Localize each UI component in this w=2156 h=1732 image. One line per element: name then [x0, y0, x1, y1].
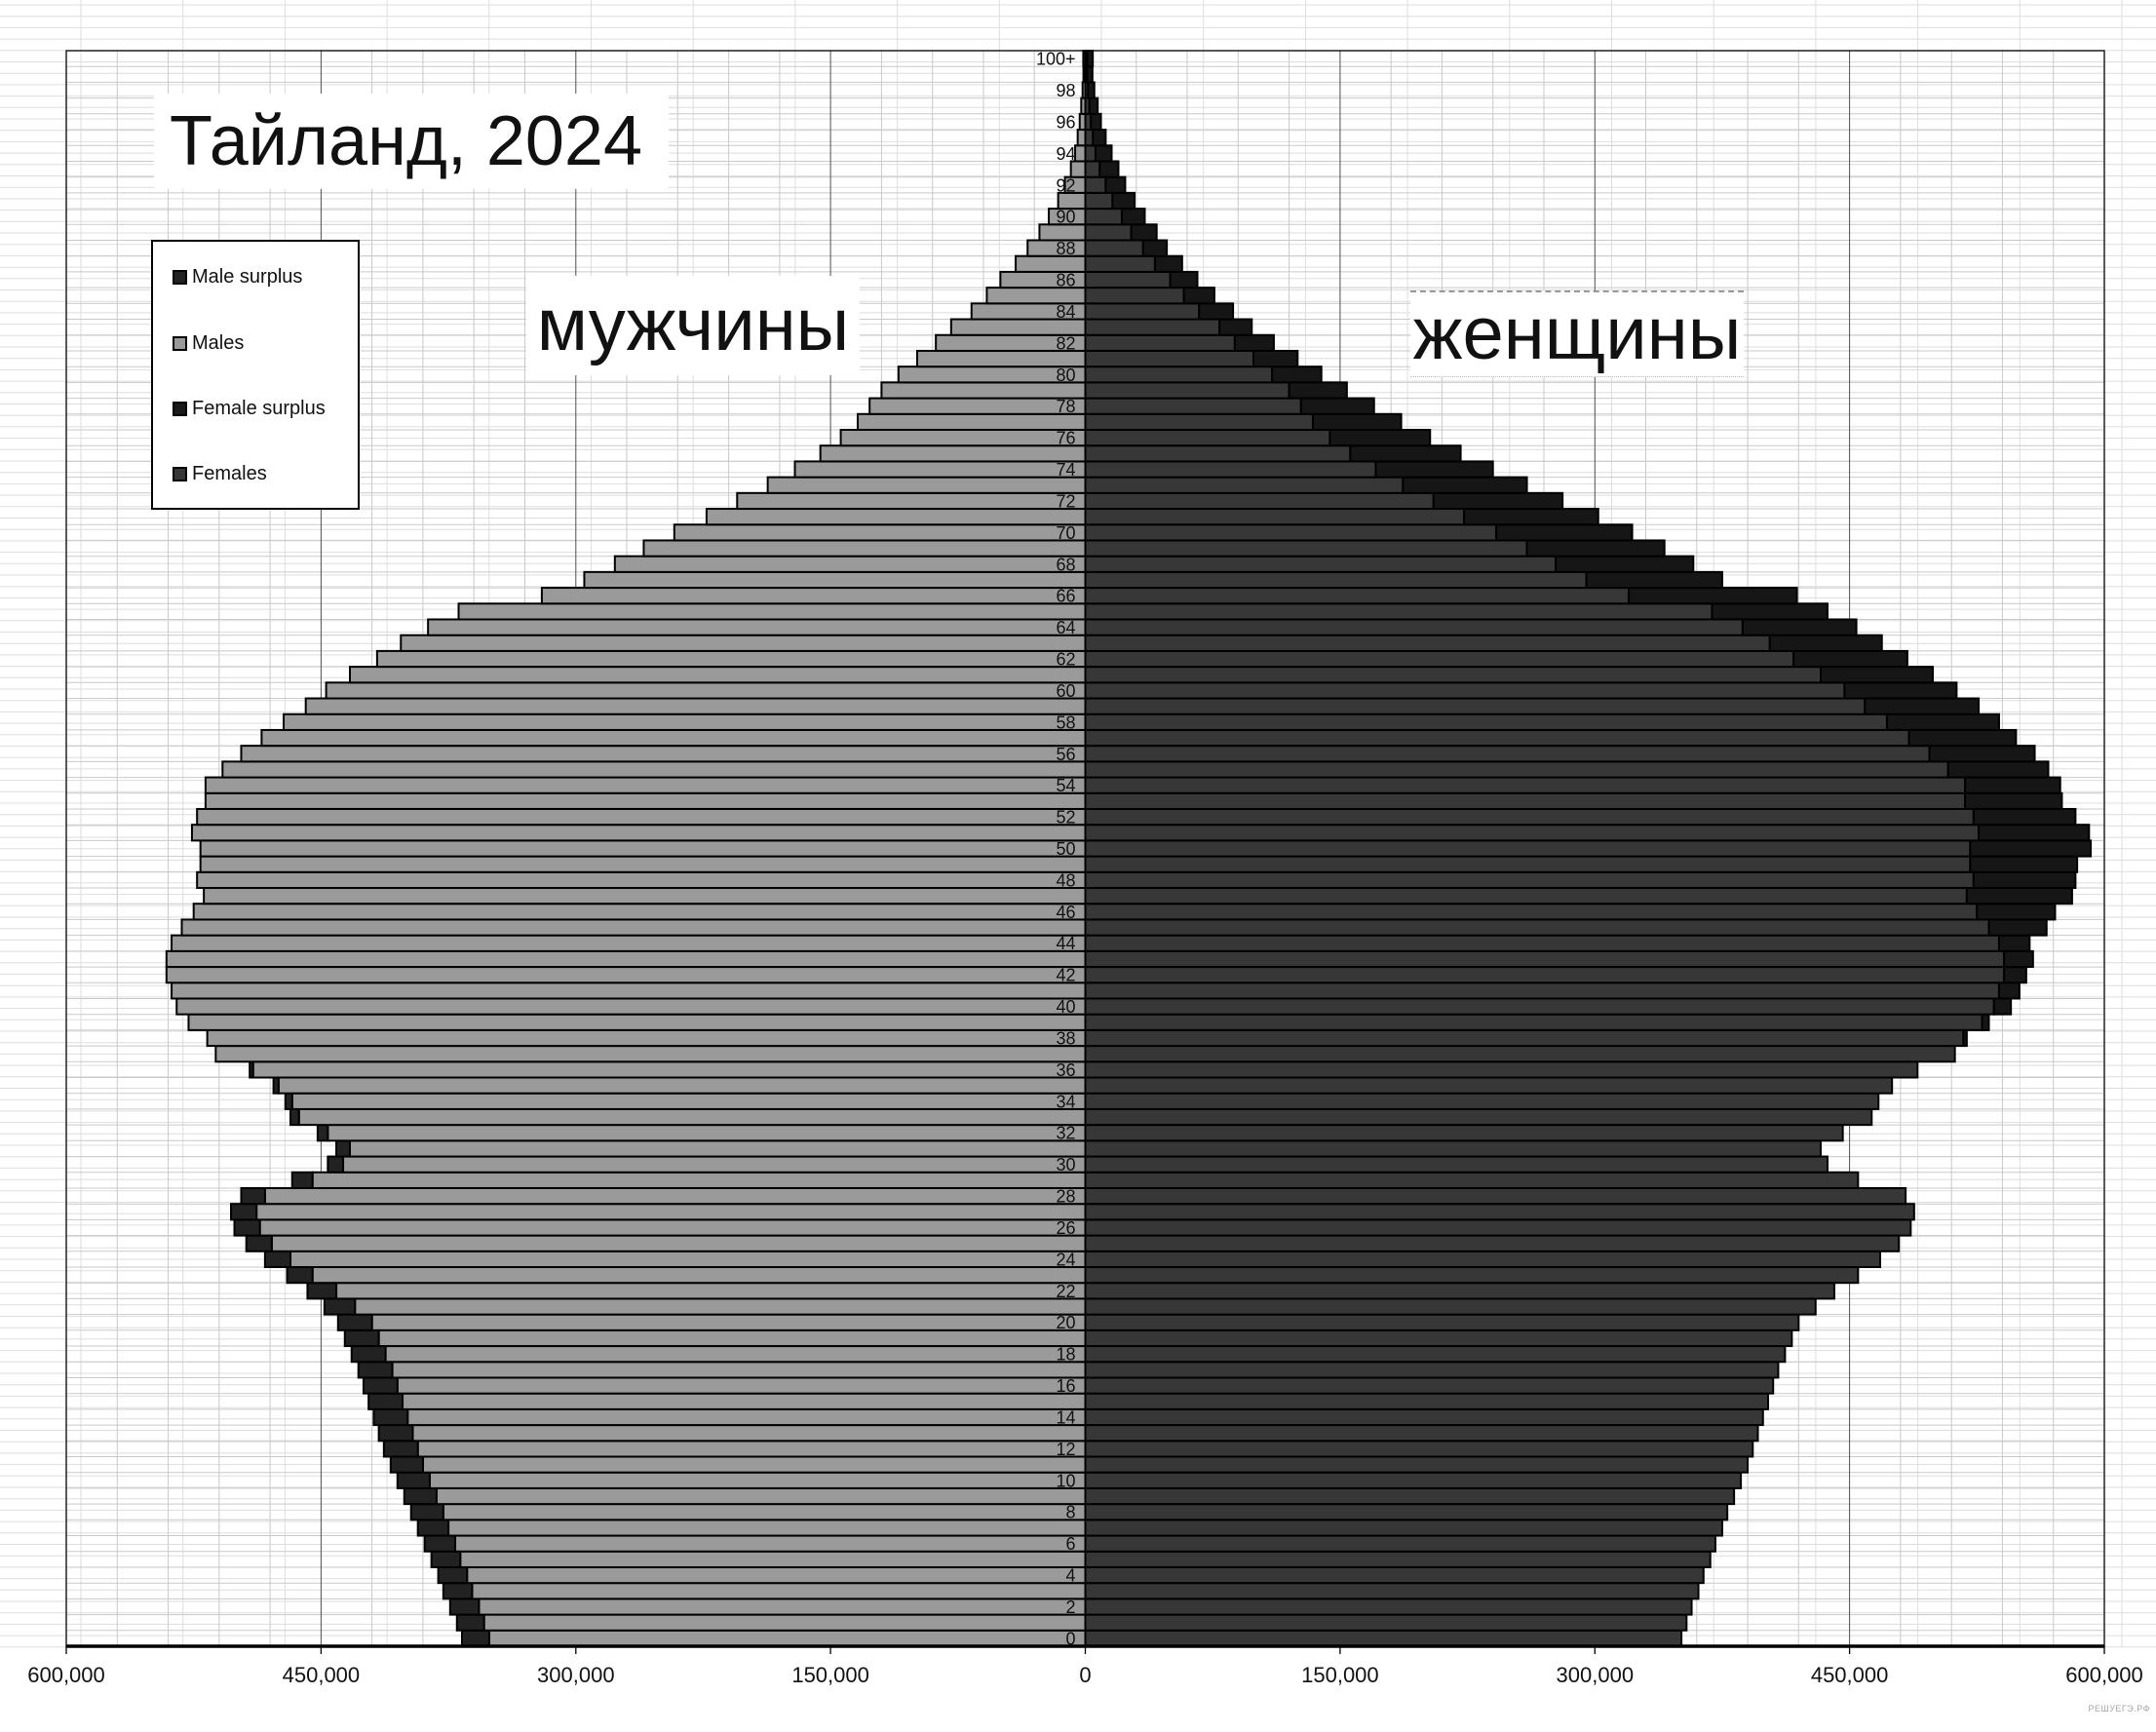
- bar-female-age-51: [1086, 825, 1980, 840]
- legend-label: Female surplus: [192, 398, 326, 420]
- male-surplus-swatch-icon: [173, 270, 187, 285]
- age-tick-34: 34: [1056, 1092, 1075, 1111]
- bar-male-age-20: [372, 1315, 1086, 1330]
- bar-male-surplus-age-30: [327, 1157, 343, 1173]
- bar-female-age-38: [1086, 1030, 1964, 1046]
- bar-female-age-22: [1086, 1283, 1834, 1298]
- bar-female-surplus-age-89: [1132, 224, 1157, 240]
- age-tick-28: 28: [1056, 1187, 1075, 1207]
- bar-male-age-48: [197, 872, 1085, 888]
- bar-female-surplus-age-56: [1930, 746, 2035, 761]
- bar-male-surplus-age-20: [338, 1315, 372, 1330]
- age-tick-24: 24: [1056, 1250, 1075, 1269]
- age-tick-2: 2: [1065, 1597, 1075, 1617]
- age-tick-94: 94: [1056, 144, 1075, 164]
- bar-male-age-41: [172, 982, 1085, 998]
- bar-male-age-66: [542, 588, 1086, 603]
- bar-male-age-23: [313, 1267, 1086, 1283]
- bar-female-age-24: [1086, 1251, 1880, 1267]
- age-tick-70: 70: [1056, 523, 1075, 543]
- bar-female-surplus-age-54: [1965, 778, 2060, 793]
- bar-female-surplus-age-77: [1313, 414, 1402, 430]
- bar-female-age-61: [1086, 667, 1822, 682]
- bar-male-surplus-age-3: [443, 1583, 473, 1598]
- bar-female-age-11: [1086, 1457, 1749, 1473]
- bar-female-age-15: [1086, 1394, 1768, 1409]
- bar-male-age-51: [192, 825, 1086, 840]
- bar-female-age-62: [1086, 651, 1794, 667]
- bar-female-surplus-age-48: [1974, 872, 2076, 888]
- bar-female-age-60: [1086, 682, 1845, 698]
- age-tick-66: 66: [1056, 587, 1075, 606]
- bar-female-surplus-age-87: [1155, 256, 1182, 272]
- bar-female-age-44: [1086, 936, 1999, 951]
- x-tick-600,000-R: 600,000: [2065, 1663, 2143, 1687]
- bar-female-age-48: [1086, 872, 1974, 888]
- bar-male-age-40: [176, 998, 1085, 1014]
- bar-female-age-55: [1086, 761, 1948, 777]
- age-tick-0: 0: [1065, 1629, 1075, 1648]
- bar-female-age-50: [1086, 840, 1971, 856]
- bar-female-age-64: [1086, 619, 1743, 635]
- bar-male-age-21: [355, 1298, 1085, 1314]
- x-tick-450,000-L: 450,000: [283, 1663, 361, 1687]
- x-tick-300,000-R: 300,000: [1557, 1663, 1635, 1687]
- bar-male-age-85: [986, 288, 1085, 303]
- x-tick-450,000-R: 450,000: [1811, 1663, 1889, 1687]
- bar-female-surplus-age-91: [1112, 193, 1135, 209]
- age-tick-40: 40: [1056, 997, 1075, 1017]
- bar-female-age-23: [1086, 1267, 1859, 1283]
- bar-female-surplus-age-74: [1375, 461, 1492, 477]
- age-tick-78: 78: [1056, 397, 1075, 416]
- legend-item-female-surplus: Female surplus: [173, 395, 326, 422]
- bar-female-surplus-age-67: [1587, 572, 1722, 588]
- bar-female-surplus-age-94: [1096, 145, 1112, 161]
- bar-female-age-69: [1086, 540, 1527, 556]
- age-tick-96: 96: [1056, 112, 1075, 132]
- bar-male-surplus-age-26: [235, 1219, 260, 1235]
- bar-female-age-83: [1086, 320, 1220, 335]
- bar-female-age-78: [1086, 399, 1301, 414]
- bar-female-surplus-age-62: [1793, 651, 1907, 667]
- legend-item-females: Females: [173, 460, 267, 487]
- bar-male-age-79: [881, 382, 1085, 398]
- bar-male-age-31: [350, 1140, 1086, 1156]
- age-tick-86: 86: [1056, 271, 1075, 290]
- bar-male-surplus-age-36: [250, 1061, 252, 1077]
- bar-male-age-69: [643, 540, 1085, 556]
- age-tick-100+: 100+: [1036, 50, 1076, 69]
- bar-female-surplus-age-92: [1105, 177, 1125, 193]
- bar-female-age-33: [1086, 1109, 1872, 1125]
- bar-male-surplus-age-31: [336, 1140, 350, 1156]
- bar-male-age-76: [841, 430, 1086, 445]
- bar-male-surplus-age-10: [398, 1473, 430, 1488]
- bar-female-surplus-age-51: [1979, 825, 2089, 840]
- bar-male-age-15: [403, 1394, 1085, 1409]
- bar-male-age-87: [1016, 256, 1085, 272]
- bar-female-surplus-age-75: [1350, 445, 1460, 461]
- bar-female-surplus-age-85: [1184, 288, 1214, 303]
- bar-male-surplus-age-27: [231, 1204, 256, 1219]
- bar-female-age-40: [1086, 998, 1994, 1014]
- bar-female-age-30: [1086, 1157, 1828, 1173]
- bar-male-age-55: [222, 761, 1085, 777]
- bar-male-surplus-age-12: [384, 1441, 418, 1456]
- age-tick-8: 8: [1065, 1503, 1075, 1522]
- bar-male-surplus-age-17: [359, 1362, 393, 1377]
- age-tick-36: 36: [1056, 1060, 1075, 1080]
- bar-female-age-92: [1086, 177, 1106, 193]
- age-tick-56: 56: [1056, 745, 1075, 764]
- bar-female-surplus-age-41: [1999, 982, 2020, 998]
- bar-male-age-11: [423, 1457, 1086, 1473]
- bar-female-surplus-age-44: [1999, 936, 2029, 951]
- bar-female-age-66: [1086, 588, 1630, 603]
- bar-female-age-3: [1086, 1583, 1699, 1598]
- bar-female-age-52: [1086, 809, 1974, 825]
- bar-female-age-1: [1086, 1615, 1687, 1631]
- bar-female-age-32: [1086, 1125, 1843, 1140]
- bar-male-age-75: [821, 445, 1086, 461]
- bar-male-age-3: [472, 1583, 1085, 1598]
- age-tick-30: 30: [1056, 1155, 1075, 1174]
- age-tick-98: 98: [1056, 81, 1075, 100]
- bar-female-age-41: [1086, 982, 1999, 998]
- bar-female-age-49: [1086, 857, 1971, 872]
- bar-male-surplus-age-22: [307, 1283, 336, 1298]
- bar-female-age-80: [1086, 366, 1273, 382]
- bar-male-age-13: [412, 1425, 1085, 1441]
- age-tick-26: 26: [1056, 1218, 1075, 1238]
- age-tick-50: 50: [1056, 839, 1075, 859]
- bar-male-age-2: [479, 1598, 1085, 1614]
- bar-female-age-46: [1086, 904, 1978, 919]
- bar-male-age-30: [343, 1157, 1085, 1173]
- bar-female-age-20: [1086, 1315, 1799, 1330]
- age-tick-88: 88: [1056, 239, 1075, 258]
- bar-male-surplus-age-7: [418, 1520, 448, 1535]
- bar-male-age-49: [201, 857, 1086, 872]
- bar-female-age-45: [1086, 919, 1989, 935]
- bar-male-age-77: [858, 414, 1085, 430]
- bar-female-surplus-age-79: [1290, 382, 1347, 398]
- age-tick-58: 58: [1056, 712, 1075, 732]
- bar-female-age-77: [1086, 414, 1313, 430]
- bar-male-surplus-age-9: [404, 1488, 437, 1504]
- age-tick-10: 10: [1056, 1471, 1075, 1490]
- age-tick-84: 84: [1056, 302, 1075, 322]
- bar-female-surplus-age-76: [1329, 430, 1430, 445]
- bar-male-age-32: [327, 1125, 1085, 1140]
- bar-male-age-1: [484, 1615, 1086, 1631]
- bar-male-age-27: [256, 1204, 1085, 1219]
- females-swatch-icon: [173, 467, 187, 481]
- age-tick-60: 60: [1056, 681, 1075, 701]
- chart-title: Тайланд, 2024: [154, 94, 669, 189]
- age-tick-80: 80: [1056, 366, 1075, 385]
- bar-female-age-6: [1086, 1536, 1715, 1552]
- age-tick-22: 22: [1056, 1282, 1075, 1301]
- bar-female-surplus-age-59: [1865, 699, 1979, 714]
- bar-female-surplus-age-70: [1496, 524, 1632, 540]
- bar-male-age-67: [584, 572, 1085, 588]
- bar-female-surplus-age-71: [1464, 509, 1598, 524]
- bar-male-age-44: [172, 936, 1085, 951]
- bar-male-surplus-age-18: [352, 1346, 386, 1362]
- bar-female-age-36: [1086, 1061, 1918, 1077]
- bar-male-age-73: [768, 478, 1086, 493]
- x-tick-0-C: 0: [1079, 1663, 1091, 1687]
- age-tick-76: 76: [1056, 429, 1075, 448]
- bar-male-age-43: [167, 951, 1086, 967]
- age-tick-38: 38: [1056, 1029, 1075, 1049]
- bar-male-age-6: [455, 1536, 1085, 1552]
- legend-item-males: Males: [173, 329, 244, 357]
- bar-male-age-83: [951, 320, 1086, 335]
- bar-female-surplus-age-80: [1272, 366, 1322, 382]
- bar-female-surplus-age-63: [1770, 635, 1882, 651]
- legend: Male surplus Males Female surplus Female…: [151, 240, 360, 510]
- bar-male-surplus-age-19: [345, 1330, 379, 1346]
- bar-male-age-28: [265, 1188, 1086, 1204]
- bar-female-surplus-age-97: [1090, 98, 1098, 114]
- bar-female-age-95: [1086, 130, 1094, 145]
- bar-male-age-46: [194, 904, 1086, 919]
- bar-male-surplus-age-35: [274, 1078, 279, 1094]
- age-tick-44: 44: [1056, 934, 1075, 953]
- bar-female-age-4: [1086, 1567, 1704, 1583]
- bar-female-surplus-age-98: [1088, 82, 1094, 97]
- bar-male-surplus-age-28: [241, 1188, 264, 1204]
- bar-female-age-35: [1086, 1078, 1893, 1094]
- bar-female-surplus-age-60: [1844, 682, 1956, 698]
- bar-male-surplus-age-5: [432, 1552, 461, 1567]
- bar-female-age-75: [1086, 445, 1351, 461]
- bar-female-age-5: [1086, 1552, 1711, 1567]
- bar-male-age-34: [292, 1094, 1086, 1109]
- bar-female-surplus-age-45: [1989, 919, 2047, 935]
- bar-female-surplus-age-78: [1301, 399, 1374, 414]
- bar-female-age-27: [1086, 1204, 1914, 1219]
- bar-male-age-62: [377, 651, 1086, 667]
- bar-female-age-81: [1086, 351, 1254, 366]
- bar-female-surplus-age-99: [1087, 66, 1092, 82]
- age-tick-42: 42: [1056, 966, 1075, 985]
- bar-male-age-68: [615, 557, 1086, 572]
- bar-female-age-43: [1086, 951, 2005, 967]
- bar-female-age-93: [1086, 161, 1100, 176]
- bar-male-age-50: [201, 840, 1086, 856]
- bar-female-age-8: [1086, 1504, 1728, 1520]
- bar-female-surplus-age-40: [1994, 998, 2011, 1014]
- bar-female-age-82: [1086, 335, 1235, 351]
- bar-female-age-2: [1086, 1598, 1692, 1614]
- bar-male-age-47: [204, 888, 1085, 904]
- bar-female-age-72: [1086, 493, 1434, 509]
- bar-male-surplus-age-24: [265, 1251, 290, 1267]
- bar-female-surplus-age-42: [2004, 967, 2026, 982]
- bar-male-age-45: [181, 919, 1085, 935]
- bar-female-surplus-age-38: [1963, 1030, 1966, 1046]
- bar-female-age-94: [1086, 145, 1096, 161]
- bar-male-age-17: [393, 1362, 1086, 1377]
- bar-female-age-42: [1086, 967, 2005, 982]
- bar-male-age-5: [460, 1552, 1085, 1567]
- age-tick-92: 92: [1056, 175, 1075, 195]
- bar-male-surplus-age-32: [318, 1125, 327, 1140]
- bar-female-age-26: [1086, 1219, 1911, 1235]
- bar-male-age-24: [290, 1251, 1085, 1267]
- bar-female-age-58: [1086, 714, 1887, 730]
- bar-female-age-90: [1086, 209, 1122, 224]
- age-tick-48: 48: [1056, 870, 1075, 890]
- bar-male-surplus-age-16: [364, 1377, 398, 1393]
- bar-female-surplus-age-55: [1948, 761, 2049, 777]
- bar-female-age-13: [1086, 1425, 1758, 1441]
- bar-female-age-59: [1086, 699, 1866, 714]
- bar-male-age-22: [336, 1283, 1085, 1298]
- bar-male-age-19: [379, 1330, 1086, 1346]
- bar-female-age-70: [1086, 524, 1497, 540]
- bar-female-age-89: [1086, 224, 1132, 240]
- bar-male-surplus-age-34: [286, 1094, 292, 1109]
- bar-female-surplus-age-88: [1143, 241, 1167, 256]
- bar-female-age-63: [1086, 635, 1770, 651]
- bar-female-surplus-age-65: [1712, 603, 1827, 619]
- bar-female-age-85: [1086, 288, 1184, 303]
- age-tick-6: 6: [1065, 1534, 1075, 1554]
- legend-label: Male surplus: [192, 266, 302, 289]
- bar-female-age-91: [1086, 193, 1113, 209]
- bar-female-age-31: [1086, 1140, 1822, 1156]
- bar-male-age-25: [272, 1236, 1086, 1251]
- population-pyramid-screenshot: 0246810121416182022242628303234363840424…: [0, 0, 2156, 1732]
- bar-male-age-72: [737, 493, 1085, 509]
- bar-male-surplus-age-15: [368, 1394, 403, 1409]
- bar-male-surplus-age-6: [425, 1536, 455, 1552]
- bar-female-age-87: [1086, 256, 1155, 272]
- bar-male-age-36: [253, 1061, 1086, 1077]
- age-tick-82: 82: [1056, 333, 1075, 353]
- bar-female-age-86: [1086, 272, 1171, 288]
- bar-male-surplus-age-8: [411, 1504, 443, 1520]
- males-swatch-icon: [173, 336, 187, 351]
- bar-male-surplus-age-21: [325, 1298, 355, 1314]
- bar-male-age-9: [437, 1488, 1086, 1504]
- bar-male-age-14: [407, 1409, 1085, 1425]
- bar-female-surplus-age-39: [1983, 1015, 1989, 1030]
- bar-female-age-57: [1086, 730, 1909, 746]
- male-side-label: мужчины: [526, 276, 860, 375]
- bar-female-surplus-age-58: [1887, 714, 1999, 730]
- bar-male-surplus-age-23: [288, 1267, 313, 1283]
- bar-female-surplus-age-84: [1199, 303, 1233, 319]
- bar-female-age-56: [1086, 746, 1930, 761]
- bar-male-surplus-age-0: [462, 1631, 489, 1646]
- age-tick-54: 54: [1056, 776, 1075, 795]
- bar-male-age-61: [350, 667, 1086, 682]
- bar-female-age-29: [1086, 1173, 1859, 1188]
- bar-male-age-7: [448, 1520, 1085, 1535]
- age-tick-52: 52: [1056, 808, 1075, 828]
- bar-male-surplus-age-29: [292, 1173, 313, 1188]
- watermark: РЕШУЕГЭ.РФ: [2088, 1704, 2150, 1713]
- bar-male-age-38: [208, 1030, 1086, 1046]
- bar-female-surplus-age-46: [1977, 904, 2055, 919]
- bar-female-age-39: [1086, 1015, 1983, 1030]
- age-tick-64: 64: [1056, 618, 1075, 637]
- bar-female-surplus-age-43: [2004, 951, 2033, 967]
- bar-female-surplus-age-53: [1965, 793, 2061, 809]
- bar-female-age-76: [1086, 430, 1330, 445]
- bar-male-age-54: [206, 778, 1086, 793]
- bar-female-age-9: [1086, 1488, 1735, 1504]
- bar-female-age-28: [1086, 1188, 1906, 1204]
- legend-label: Females: [192, 463, 267, 485]
- bar-male-age-70: [674, 524, 1086, 540]
- bar-female-surplus-age-50: [1970, 840, 2091, 856]
- age-tick-68: 68: [1056, 555, 1075, 574]
- age-tick-72: 72: [1056, 491, 1075, 511]
- x-tick-150,000-L: 150,000: [791, 1663, 869, 1687]
- age-tick-12: 12: [1056, 1440, 1075, 1459]
- age-tick-18: 18: [1056, 1345, 1075, 1365]
- bar-female-surplus-age-81: [1253, 351, 1297, 366]
- bar-male-age-94: [1075, 145, 1085, 161]
- bar-female-age-37: [1086, 1046, 1955, 1061]
- bar-female-surplus-age-64: [1743, 619, 1857, 635]
- bar-male-age-95: [1078, 130, 1086, 145]
- bar-female-age-17: [1086, 1362, 1779, 1377]
- bar-female-age-79: [1086, 382, 1290, 398]
- bar-female-age-74: [1086, 461, 1376, 477]
- bar-female-age-53: [1086, 793, 1966, 809]
- bar-male-age-63: [401, 635, 1085, 651]
- bar-female-surplus-age-57: [1909, 730, 2017, 746]
- bar-male-surplus-age-2: [450, 1598, 480, 1614]
- x-tick-150,000-R: 150,000: [1301, 1663, 1379, 1687]
- bar-male-age-16: [398, 1377, 1086, 1393]
- bar-female-age-18: [1086, 1346, 1786, 1362]
- bar-male-age-59: [306, 699, 1086, 714]
- bar-male-age-37: [215, 1046, 1085, 1061]
- bar-female-age-7: [1086, 1520, 1722, 1535]
- bar-male-age-39: [188, 1015, 1085, 1030]
- bar-female-surplus-age-49: [1970, 857, 2077, 872]
- bar-female-surplus-age-93: [1099, 161, 1118, 176]
- bar-female-age-47: [1086, 888, 1967, 904]
- bar-female-surplus-age-47: [1967, 888, 2072, 904]
- bar-female-surplus-age-68: [1556, 557, 1693, 572]
- bar-female-surplus-age-72: [1434, 493, 1562, 509]
- age-tick-90: 90: [1056, 208, 1075, 227]
- age-tick-14: 14: [1056, 1408, 1075, 1428]
- bar-female-age-10: [1086, 1473, 1742, 1488]
- bar-female-age-71: [1086, 509, 1465, 524]
- bar-female-age-65: [1086, 603, 1713, 619]
- bar-female-surplus-age-100: [1088, 51, 1094, 66]
- bar-male-age-52: [197, 809, 1085, 825]
- bar-male-age-26: [260, 1219, 1086, 1235]
- female-side-label: женщины: [1410, 290, 1744, 377]
- age-tick-4: 4: [1065, 1566, 1075, 1586]
- bar-male-surplus-age-14: [373, 1409, 407, 1425]
- bar-male-age-58: [284, 714, 1085, 730]
- bar-male-age-42: [167, 967, 1086, 982]
- bar-male-age-4: [467, 1567, 1085, 1583]
